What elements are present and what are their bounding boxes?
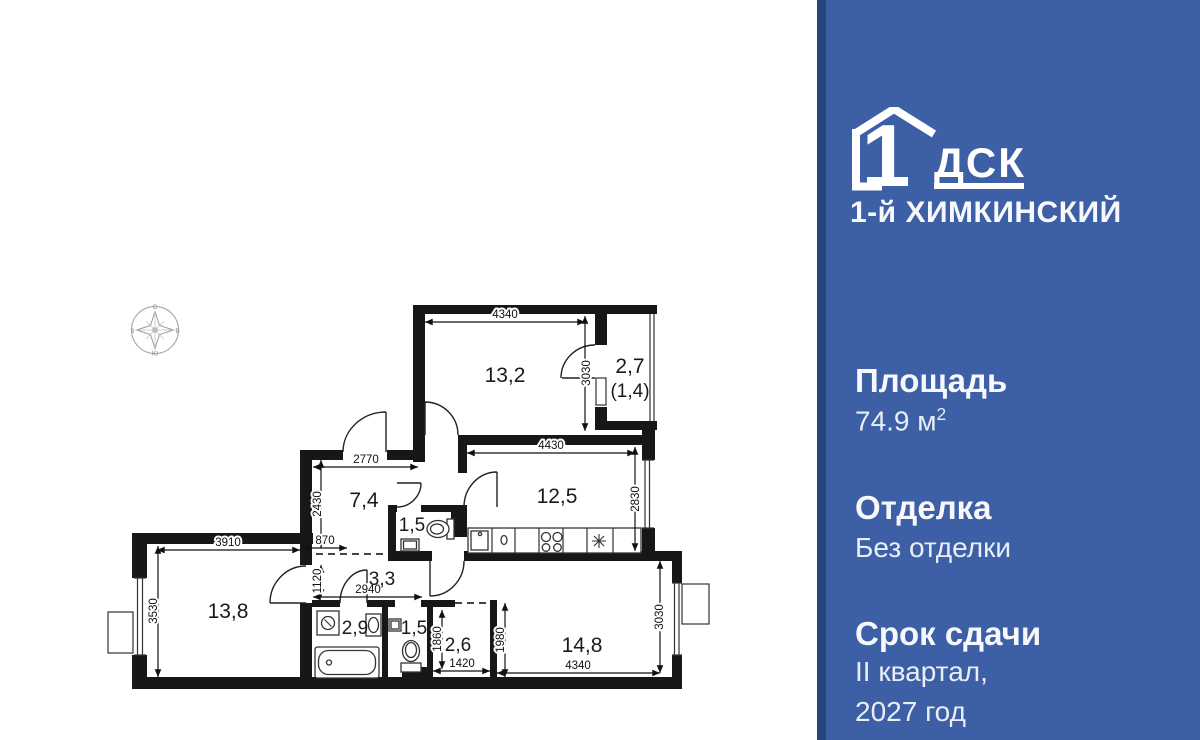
deadline-label: Срок сдачи: [855, 615, 1041, 653]
compass-east: В: [175, 328, 179, 335]
floorplan-drawing: С В Ю З: [0, 0, 817, 740]
appliance-star-icon: [592, 534, 606, 548]
dim-4430: 4430: [538, 440, 564, 452]
area-label: Площадь: [855, 362, 1007, 400]
dim-1980: 1980: [495, 627, 507, 653]
dim-2430: 2430: [312, 491, 324, 517]
project-name: 1-й ХИМКИНСКИЙ: [850, 196, 1122, 230]
balcony-basket-right: [682, 584, 709, 624]
area-number: 74.9 м: [855, 405, 937, 436]
room-label-wc-upper: 1,5: [399, 515, 425, 536]
finishing-value: Без отделки: [855, 532, 1011, 564]
dim-1420: 1420: [449, 658, 475, 670]
area-value: 74.9 м2: [855, 404, 946, 437]
room-label-closet: 2,6: [445, 635, 471, 656]
dim-1860: 1860: [432, 626, 444, 652]
logo-digit: 1: [862, 107, 911, 199]
room-label-13-2: 13,2: [485, 364, 526, 387]
dim-3030-top: 3030: [581, 360, 593, 386]
dim-2830: 2830: [630, 486, 642, 512]
room-label-bathroom: 2,9: [342, 618, 368, 639]
area-sup: 2: [937, 404, 947, 424]
compass-west: З: [131, 328, 135, 335]
floorplan-page: С В Ю З: [0, 0, 1200, 740]
compass-north: С: [153, 304, 158, 311]
compass-icon: С В Ю З: [131, 304, 180, 358]
room-label-13-8: 13,8: [208, 600, 249, 623]
logo-brand: ДСК: [934, 139, 1026, 186]
room-label-balcony: 2,7: [615, 355, 644, 378]
balcony-basket-left: [108, 612, 133, 653]
info-panel: 1 ДСК 1-й ХИМКИНСКИЙ Площадь 74.9 м2 Отд…: [817, 0, 1200, 740]
deadline-value-line1: II квартал,: [855, 656, 988, 688]
room-label-14-8: 14,8: [562, 634, 603, 657]
dim-1120: 1120: [312, 569, 324, 594]
logo-underline: [934, 183, 1024, 189]
dim-4340-bottom: 4340: [565, 660, 591, 672]
panel-edge-divider: [817, 0, 826, 740]
deadline-value-line2: 2027 год: [855, 696, 966, 728]
room-label-corridor: 3,3: [369, 569, 395, 590]
dim-870: 870: [315, 535, 334, 547]
room-label-kitchen: 12,5: [537, 485, 578, 508]
dim-3530: 3530: [148, 598, 160, 624]
room-label-hallway: 7,4: [349, 489, 379, 512]
room-label-wc-lower: 1,5: [401, 618, 427, 639]
compass-south: Ю: [152, 351, 159, 358]
room-label-balcony-reduced: (1,4): [610, 381, 649, 402]
dim-2770: 2770: [353, 454, 379, 466]
finishing-label: Отделка: [855, 489, 992, 527]
dim-3030-bottom: 3030: [654, 604, 666, 630]
doors: [270, 345, 595, 603]
dim-4340-top: 4340: [492, 309, 518, 321]
dim-3910: 3910: [215, 537, 241, 549]
kitchen-counter: [468, 528, 641, 553]
dsk-logo: 1 ДСК: [850, 107, 1150, 199]
